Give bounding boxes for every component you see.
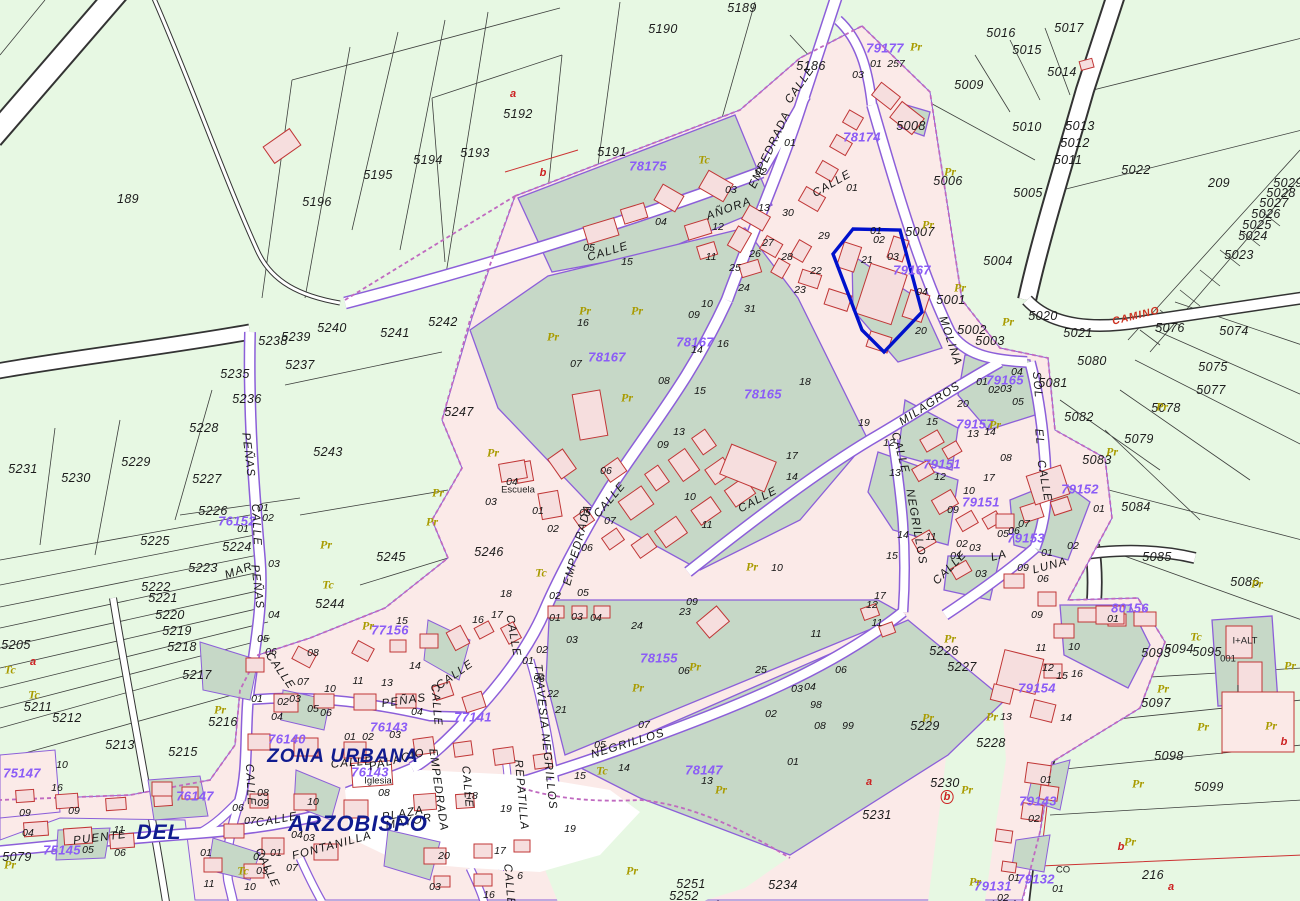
house-number: 09 <box>1017 562 1029 574</box>
house-number: 11 <box>353 675 364 687</box>
parcel-number: 5224 <box>222 540 251 554</box>
house-number: 10 <box>324 683 336 695</box>
block-number: 79167 <box>893 263 931 278</box>
house-number: 03 <box>1000 383 1012 395</box>
block-number: 79154 <box>1018 681 1056 696</box>
house-number: 04 <box>271 711 283 723</box>
crop-code: Pr <box>1132 777 1144 792</box>
parcel-number: 5228 <box>189 421 218 435</box>
house-number: 03 <box>429 881 441 893</box>
house-number: 09 <box>1031 609 1043 621</box>
house-number: 01 <box>1052 883 1064 895</box>
house-number: 13 <box>889 467 901 479</box>
house-number: 15 <box>694 385 706 397</box>
map-annotation: I <box>1237 684 1240 695</box>
street-name: NEGRILLOS <box>903 488 928 566</box>
house-number: 07 <box>604 515 616 527</box>
map-annotation: I+ALT <box>1233 636 1258 647</box>
crop-code: Pr <box>1265 719 1277 734</box>
crop-code: Pr <box>944 165 956 180</box>
crop-code: Tc <box>596 764 608 779</box>
parcel-number: 5082 <box>1064 410 1093 424</box>
house-number: 01 <box>1041 547 1053 559</box>
house-number: 02 <box>997 892 1009 901</box>
house-number: 04 <box>22 827 34 839</box>
parcel-number: 5012 <box>1060 136 1089 150</box>
street-name: CALLE <box>736 485 779 516</box>
street-name: CALLE <box>434 658 476 692</box>
crop-code: Pr <box>362 619 374 634</box>
crop-code: Pr <box>1156 400 1168 415</box>
block-number: 79152 <box>1061 482 1099 497</box>
house-number: 25 <box>755 664 767 676</box>
house-number: 13 <box>673 426 685 438</box>
parcel-number: 5017 <box>1054 21 1083 35</box>
zone-label: DEL <box>137 821 182 845</box>
house-number: 14 <box>897 529 909 541</box>
house-number: 03 <box>268 558 280 570</box>
zone-label: ARZOBISPO <box>288 811 428 837</box>
crop-code: Pr <box>989 418 1001 433</box>
house-number: 10 <box>56 759 68 771</box>
crop-code: Pr <box>214 703 226 718</box>
house-number: 02 <box>549 590 561 602</box>
parcel-number: 5076 <box>1155 321 1184 335</box>
parcel-number: 5230 <box>930 776 959 790</box>
house-number: 24 <box>631 620 643 632</box>
house-number: 06 <box>835 664 847 676</box>
house-number: 26 <box>749 248 761 260</box>
house-number: 15 <box>886 550 898 562</box>
parcel-number: 5085 <box>1142 550 1171 564</box>
zone-label: ZONA URBANA <box>267 746 419 768</box>
house-number: 02 <box>262 512 274 524</box>
house-number: 06 <box>265 646 277 658</box>
house-number: 08 <box>1000 452 1012 464</box>
house-number: 01 <box>950 550 962 562</box>
street-name: CALLE <box>1034 459 1053 503</box>
house-number: 19 <box>500 803 512 815</box>
crop-code: Pr <box>426 515 438 530</box>
house-number: 03 <box>571 611 583 623</box>
map-annotation: 001 <box>1220 654 1236 665</box>
house-number: 01 <box>787 756 799 768</box>
house-number: 01 <box>200 847 212 859</box>
house-number: 13 <box>758 202 770 214</box>
parcel-number: 5234 <box>768 878 797 892</box>
house-number: 21 <box>555 704 567 716</box>
house-number: 02 <box>277 696 289 708</box>
parcel-number: 5009 <box>954 78 983 92</box>
house-number: 15 <box>574 770 586 782</box>
house-number: 02 <box>547 523 559 535</box>
house-number: 03 <box>975 568 987 580</box>
parcel-number: 5099 <box>1194 780 1223 794</box>
parcel-number: 5075 <box>1198 360 1227 374</box>
house-number: 05 <box>1012 396 1024 408</box>
house-number: 19 <box>564 823 576 835</box>
parcel-number: 5193 <box>460 146 489 160</box>
house-number: 03 <box>969 542 981 554</box>
house-number: 08 <box>378 787 390 799</box>
parcel-number: 5022 <box>1121 163 1150 177</box>
parcel-number: 5243 <box>313 445 342 459</box>
house-number: 04 <box>655 216 667 228</box>
parcel-number: 5005 <box>1013 186 1042 200</box>
cadastral-map[interactable]: 1895195519651945193519251905189518651915… <box>0 0 1300 901</box>
house-number: 11 <box>706 251 717 263</box>
parcel-number: 5196 <box>302 195 331 209</box>
parcel-number: 5003 <box>975 334 1004 348</box>
crop-code: Tc <box>28 688 40 703</box>
map-labels: 1895195519651945193519251905189518651915… <box>0 0 1300 901</box>
parcel-number: 5223 <box>188 561 217 575</box>
house-number: 02 <box>765 708 777 720</box>
parcel-number: 5016 <box>986 26 1015 40</box>
house-number: 04 <box>411 706 423 718</box>
house-number: 04 <box>1011 366 1023 378</box>
house-number: 24 <box>738 282 750 294</box>
house-number: 06 <box>320 707 332 719</box>
house-number: 04 <box>590 612 602 624</box>
house-number: 22 <box>810 265 822 277</box>
block-number: 78174 <box>843 130 881 145</box>
house-number: 09 <box>68 805 80 817</box>
parcel-number: 5079 <box>1124 432 1153 446</box>
house-number: 16 <box>717 338 729 350</box>
block-number: 79151 <box>923 457 961 472</box>
house-number: 09 <box>657 439 669 451</box>
house-number: 31 <box>744 303 756 315</box>
crop-code: Pr <box>922 218 934 233</box>
house-number: 14 <box>1060 712 1072 724</box>
house-number: 09 <box>257 797 269 809</box>
house-number: 14 <box>786 471 798 483</box>
house-number: 13 <box>1000 711 1012 723</box>
crop-code: Pr <box>547 330 559 345</box>
house-number: 03 <box>887 251 899 263</box>
crop-code: Pr <box>1002 315 1014 330</box>
house-number: 20 <box>915 325 927 337</box>
house-number: 05 <box>307 703 319 715</box>
house-number: 14 <box>691 344 703 356</box>
parcel-number: 5247 <box>444 405 473 419</box>
house-number: 02 <box>253 851 265 863</box>
house-number: 07 <box>244 815 256 827</box>
crop-code: Pr <box>746 560 758 575</box>
parcel-number: 5008 <box>896 119 925 133</box>
house-number: 08 <box>307 647 319 659</box>
street-name: SOL <box>1030 371 1044 399</box>
house-number: 12 <box>883 437 895 449</box>
house-number: 11 <box>926 531 937 543</box>
crop-code: Pr <box>1284 659 1296 674</box>
crop-code: Tc <box>322 578 334 593</box>
parcel-number: 5084 <box>1121 500 1150 514</box>
block-number: 77141 <box>454 710 492 725</box>
parcel-number: 5190 <box>648 22 677 36</box>
parcel-number: 209 <box>1208 176 1230 190</box>
house-number: 12 <box>934 471 946 483</box>
house-number: 15 <box>621 256 633 268</box>
house-number: 03 <box>389 729 401 741</box>
house-number: 96 <box>533 673 545 685</box>
crop-code: Pr <box>1106 445 1118 460</box>
house-number: 09 <box>19 807 31 819</box>
block-number: 78155 <box>640 651 678 666</box>
house-number: 15 <box>396 615 408 627</box>
parcel-number: 5225 <box>140 534 169 548</box>
parcel-number: 5014 <box>1047 65 1076 79</box>
block-number: 79132 <box>1017 872 1055 887</box>
letter-code: a <box>1168 881 1174 893</box>
parcel-number: 216 <box>1142 868 1164 882</box>
parcel-number: 5004 <box>983 254 1012 268</box>
house-number: 09 <box>686 596 698 608</box>
house-number: 03 <box>725 184 737 196</box>
parcel-number: 5217 <box>182 668 211 682</box>
house-number: 06 <box>232 802 244 814</box>
block-number: 76140 <box>268 732 306 747</box>
parcel-number: 5021 <box>1063 326 1092 340</box>
house-number: 11 <box>811 628 822 640</box>
house-number: 06 <box>600 465 612 477</box>
house-number: 17 <box>494 845 506 857</box>
house-number: 10 <box>1068 641 1080 653</box>
house-number: 04 <box>268 609 280 621</box>
house-number: 01 <box>1008 872 1020 884</box>
street-name: TRAVESIA NEGRILLOS <box>531 664 558 811</box>
parcel-number: 5205 <box>1 638 30 652</box>
parcel-number: 5212 <box>52 711 81 725</box>
street-name: REPATILLA <box>512 759 530 831</box>
house-number: 19 <box>858 417 870 429</box>
street-name: PEÑAS <box>239 432 256 478</box>
house-number: 06 <box>1008 525 1020 537</box>
parcel-number: 5213 <box>105 738 134 752</box>
parcel-number: 5077 <box>1196 383 1225 397</box>
house-number: 01 <box>870 58 882 70</box>
house-number: 01 <box>1093 503 1105 515</box>
crop-code: Pr <box>910 40 922 55</box>
house-number: 01 <box>784 137 796 149</box>
crop-code: Tc <box>4 663 16 678</box>
parcel-number: 5239 <box>281 330 310 344</box>
house-number: 08 <box>658 375 670 387</box>
house-number: 98 <box>810 699 822 711</box>
house-number: 03 <box>485 496 497 508</box>
house-number: 17 <box>983 472 995 484</box>
house-number: 15 <box>926 416 938 428</box>
house-number: 01 <box>251 693 263 705</box>
parcel-number: 5252 <box>669 889 698 901</box>
house-number: 06 <box>581 542 593 554</box>
parcel-number: 5242 <box>428 315 457 329</box>
parcel-number: 5095 <box>1192 645 1221 659</box>
parcel-number: 5245 <box>376 550 405 564</box>
block-number: 76147 <box>176 789 214 804</box>
parcel-number: 5230 <box>61 471 90 485</box>
block-number: 79143 <box>1019 794 1057 809</box>
house-number: 16 <box>1071 668 1083 680</box>
block-number: 78175 <box>629 159 667 174</box>
street-name: CALLE <box>501 863 517 901</box>
house-number: 02 <box>1028 813 1040 825</box>
parcel-number: 5013 <box>1065 119 1094 133</box>
map-annotation: CO <box>1056 865 1070 876</box>
crop-code: Pr <box>922 711 934 726</box>
house-number: 05 <box>579 507 591 519</box>
parcel-number: 5241 <box>380 326 409 340</box>
house-number: 01 <box>532 505 544 517</box>
house-number: 01 <box>846 182 858 194</box>
house-number: 12 <box>866 599 878 611</box>
parcel-number: 5191 <box>597 145 626 159</box>
house-number: 10 <box>771 562 783 574</box>
crop-code: Pr <box>632 681 644 696</box>
street-name: EMPEDRADA <box>747 110 793 191</box>
house-number: 04 <box>916 286 928 298</box>
block-number: 78165 <box>744 387 782 402</box>
crop-code: Pr <box>1124 835 1136 850</box>
house-number: 07 <box>297 676 309 688</box>
street-name: AÑORA <box>705 195 753 222</box>
letter-code: a <box>510 88 516 100</box>
crop-code: Tc <box>1190 630 1202 645</box>
house-number: 06 <box>114 847 126 859</box>
letter-code: b <box>1118 841 1125 853</box>
house-number: 14 <box>618 762 630 774</box>
house-number: 16 <box>577 317 589 329</box>
house-number: 02 <box>1067 540 1079 552</box>
crop-code: Pr <box>986 710 998 725</box>
parcel-number: 5220 <box>155 608 184 622</box>
house-number: 05 <box>257 633 269 645</box>
parcel-number: 5231 <box>8 462 37 476</box>
house-number: 07 <box>286 862 298 874</box>
parcel-number: 5219 <box>162 624 191 638</box>
house-number: 10 <box>244 881 256 893</box>
house-number: 01 <box>549 612 561 624</box>
crop-code: Pr <box>432 486 444 501</box>
house-number: 02 <box>362 731 374 743</box>
house-number: 01 <box>522 655 534 667</box>
parcel-number: 5080 <box>1077 354 1106 368</box>
letter-code: b <box>941 790 954 804</box>
house-number: 10 <box>701 298 713 310</box>
crop-code: Tc <box>237 864 249 879</box>
house-number: 27 <box>762 237 774 249</box>
crop-code: Pr <box>626 864 638 879</box>
parcel-number: 5229 <box>121 455 150 469</box>
block-number: 79177 <box>866 41 904 56</box>
crop-code: Pr <box>944 632 956 647</box>
parcel-number: 5097 <box>1141 696 1170 710</box>
house-number: 02 <box>873 234 885 246</box>
house-number: 257 <box>887 58 905 70</box>
crop-code: Tc <box>698 153 710 168</box>
house-number: 02 <box>988 384 1000 396</box>
house-number: 30 <box>782 207 794 219</box>
parcel-number: 5023 <box>1224 248 1253 262</box>
house-number: 18 <box>799 376 811 388</box>
house-number: 18 <box>500 588 512 600</box>
parcel-number: 5246 <box>474 545 503 559</box>
parcel-number: 5218 <box>167 640 196 654</box>
house-number: 25 <box>729 262 741 274</box>
parcel-number: 5020 <box>1028 309 1057 323</box>
house-number: 20 <box>957 398 969 410</box>
house-number: 10 <box>684 491 696 503</box>
map-annotation: Iglesia <box>364 776 391 787</box>
house-number: 04 <box>804 681 816 693</box>
parcel-number: 5074 <box>1219 324 1248 338</box>
street-name: CALLE <box>243 763 257 806</box>
parcel-number: 5215 <box>168 745 197 759</box>
crop-code: Pr <box>1197 720 1209 735</box>
house-number: 06 <box>1037 573 1049 585</box>
parcel-number: 5011 <box>1054 153 1082 167</box>
house-number: 16 <box>51 782 63 794</box>
parcel-number: 5015 <box>1012 43 1041 57</box>
letter-code: b <box>540 167 547 179</box>
parcel-number: 5237 <box>285 358 314 372</box>
house-number: 03 <box>852 69 864 81</box>
house-number: 23 <box>794 284 806 296</box>
parcel-number: 5240 <box>317 321 346 335</box>
street-name: CALLE <box>503 614 522 658</box>
crop-code: Pr <box>621 391 633 406</box>
house-number: 05 <box>577 587 589 599</box>
house-number: 05 <box>997 528 1009 540</box>
house-number: 02 <box>956 538 968 550</box>
parcel-number: 5010 <box>1012 120 1041 134</box>
crop-code: Pr <box>689 660 701 675</box>
house-number: 6 <box>517 870 523 882</box>
house-number: 16 <box>472 614 484 626</box>
house-number: 03 <box>256 865 268 877</box>
house-number: 05 <box>594 739 606 751</box>
house-number: 03 <box>289 693 301 705</box>
house-number: 02 <box>536 644 548 656</box>
house-number: 12 <box>712 221 724 233</box>
house-number: 05 <box>82 844 94 856</box>
house-number: 01 <box>976 376 988 388</box>
parcel-number: 5195 <box>363 168 392 182</box>
house-number: 03 <box>791 683 803 695</box>
house-number: 17 <box>491 609 503 621</box>
house-number: 02 <box>755 166 767 178</box>
house-number: 28 <box>781 251 793 263</box>
parcel-number: 5231 <box>862 808 891 822</box>
house-number: 09 <box>947 504 959 516</box>
house-number: 20 <box>438 850 450 862</box>
crop-code: Pr <box>320 538 332 553</box>
house-number: 09 <box>688 309 700 321</box>
house-number: 13 <box>381 677 393 689</box>
house-number: 07 <box>638 719 650 731</box>
house-number: 11 <box>114 824 125 836</box>
house-number: 08 <box>814 720 826 732</box>
parcel-number: 5236 <box>232 392 261 406</box>
house-number: 22 <box>547 688 559 700</box>
house-number: 13 <box>967 428 979 440</box>
house-number: 01 <box>1107 613 1119 625</box>
house-number: 07 <box>570 358 582 370</box>
house-number: 10 <box>307 796 319 808</box>
house-number: 29 <box>818 230 830 242</box>
map-annotation: Escuela <box>501 485 535 496</box>
